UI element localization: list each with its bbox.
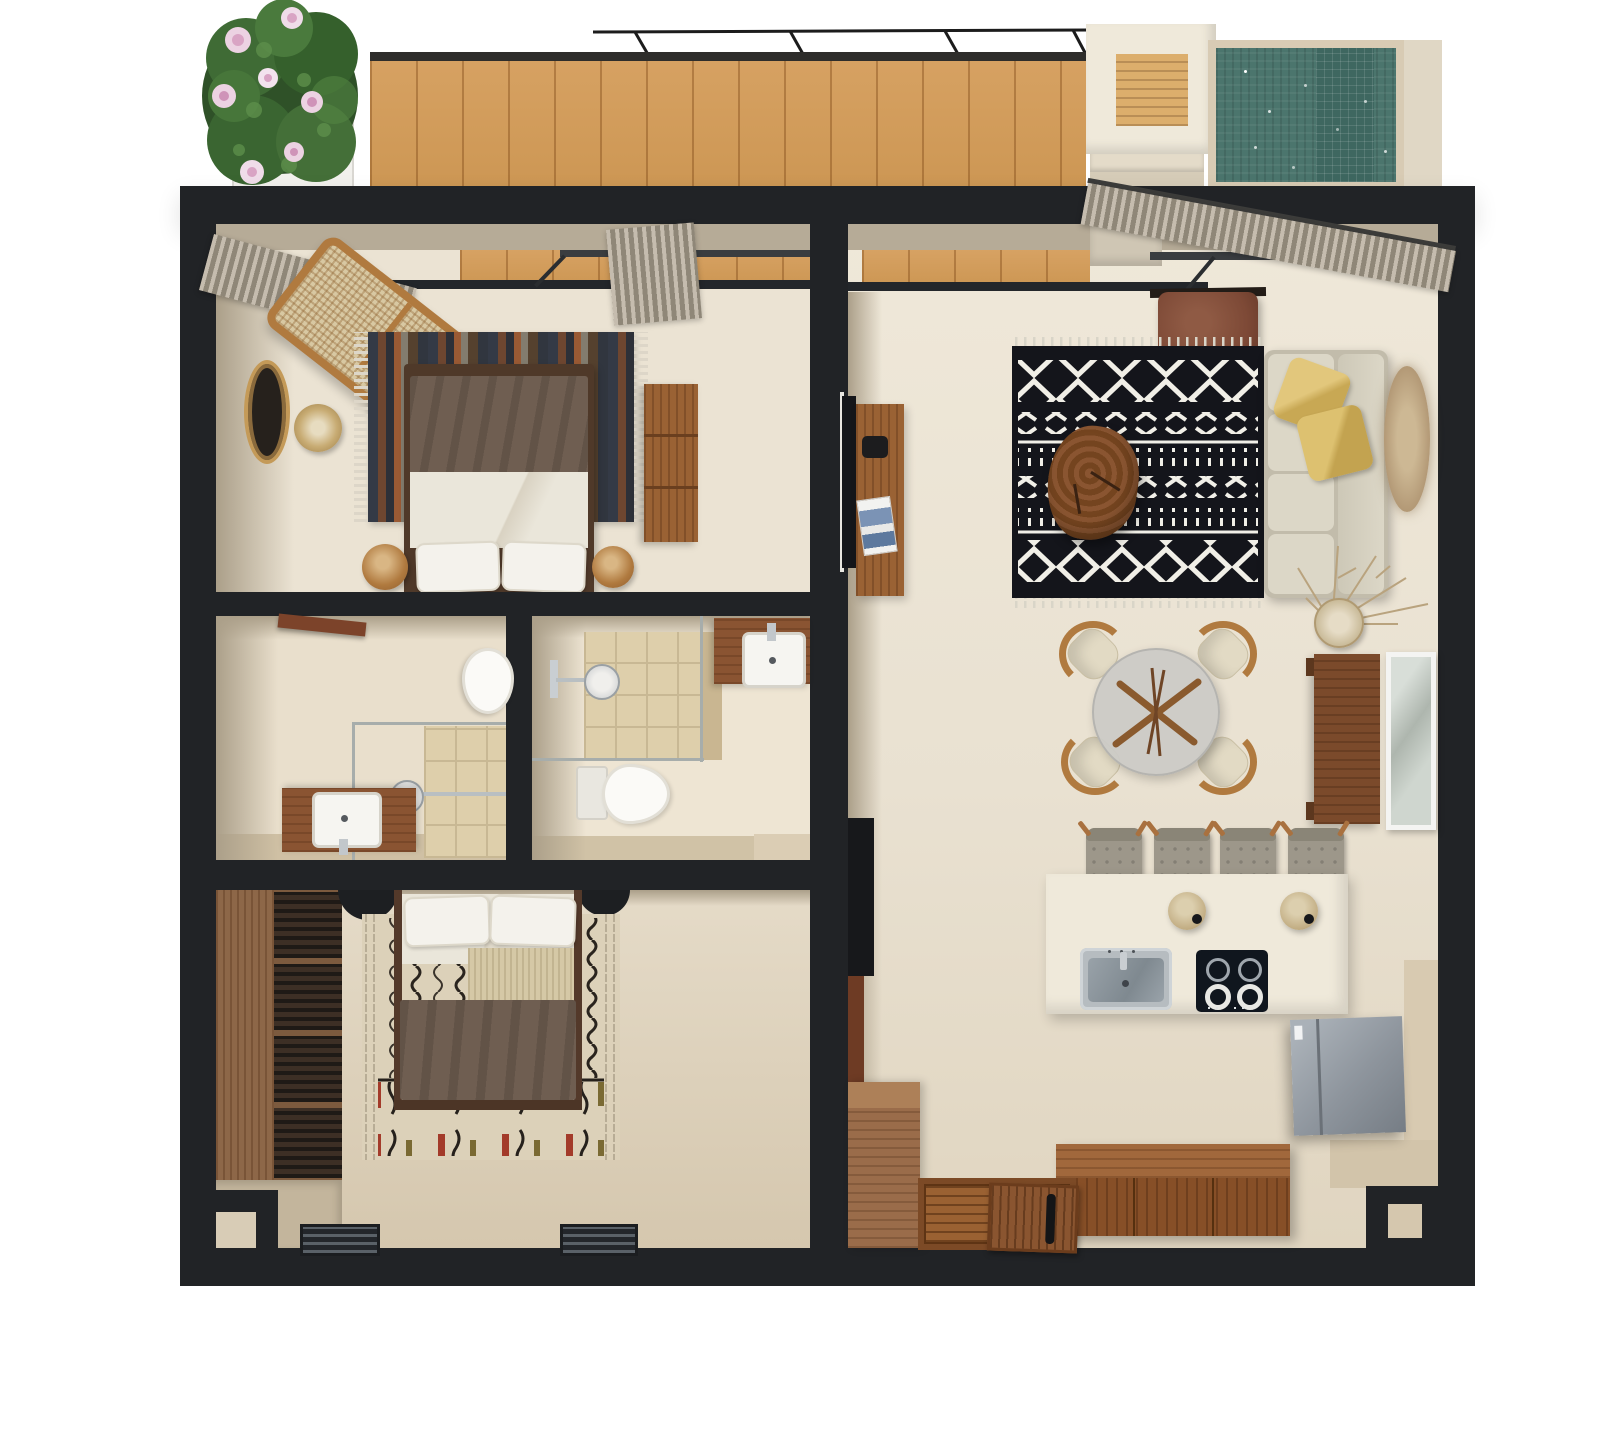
cooktop: [1196, 950, 1268, 1012]
sideboard-front: [1056, 1178, 1290, 1236]
stool-roll: [1154, 828, 1210, 841]
niche-pocket: [216, 1212, 256, 1248]
shower-glass-h: [352, 722, 506, 725]
speaker: [862, 436, 888, 458]
sink-drain: [769, 657, 776, 664]
living-deck-through-glass: [862, 250, 1090, 284]
console-leg: [1306, 658, 1314, 676]
niche-wall-top: [216, 1190, 278, 1212]
bed-2-pillow-right: [489, 895, 577, 948]
bathroom-2-shower-head: [584, 664, 620, 700]
fridge: [1290, 1016, 1406, 1136]
bed-1-pillow-right: [501, 541, 587, 594]
bathroom-2-corner-step: [754, 834, 810, 860]
pool-sparkles: [1244, 70, 1247, 73]
pendant-lamp-2: [1280, 892, 1318, 930]
table-legs-icon: [1094, 650, 1218, 774]
magazines: [856, 496, 897, 556]
bed-1-pouf-right: [592, 546, 634, 588]
sink-tap: [767, 623, 776, 641]
burner: [1237, 984, 1263, 1010]
fridge-door-seam: [1316, 1019, 1323, 1135]
corner-step-notch: [1388, 1204, 1422, 1238]
niche-wall-side: [256, 1212, 278, 1272]
island-sink: [1080, 948, 1172, 1010]
dresser-shelf-line: [644, 486, 698, 489]
bathroom-2-wall-shade-left: [532, 616, 586, 860]
plunge-pool: [1208, 40, 1404, 190]
sideboard-seam: [1133, 1178, 1135, 1236]
pool-deep-end: [1316, 48, 1374, 182]
entry-door-leaf: [987, 1182, 1079, 1253]
sideboard: [1056, 1144, 1290, 1236]
log-crack: [1090, 471, 1120, 492]
island-faucet: [1120, 952, 1127, 970]
bedroom-1-curtain-right: [606, 222, 702, 325]
jute-oval-rug: [1384, 366, 1430, 512]
fridge-handle: [1294, 1026, 1302, 1040]
floor-vent-left: [300, 1224, 380, 1256]
terrace-deck: [370, 52, 1086, 186]
sink-drain: [341, 815, 348, 822]
stool-roll: [1288, 828, 1344, 841]
sideboard-seam: [1212, 1178, 1214, 1236]
dresser-shelf-line: [644, 434, 698, 437]
wardrobe-slats: [274, 890, 342, 1180]
dining-table: [1092, 648, 1220, 776]
bed-1-pillow-left: [415, 541, 501, 594]
wall-divider-center: [810, 224, 848, 1248]
pendant-lamp-1: [1168, 892, 1206, 930]
bed-1-pouf-left: [362, 544, 408, 590]
floor-vent-right: [560, 1224, 638, 1256]
pendant-bulb: [1192, 914, 1202, 924]
planter-box: [1086, 24, 1216, 154]
planter-step-1: [1090, 154, 1204, 172]
bathroom-1-wall-shade-left: [216, 616, 278, 860]
plant-icon: [194, 0, 366, 202]
console-table: [1314, 654, 1380, 824]
entry-dresser: [848, 1082, 920, 1248]
log-crack: [1073, 484, 1081, 514]
bottom-right-ledge: [1330, 1140, 1438, 1188]
bedroom-1-dresser: [644, 384, 698, 542]
entry-door-handle: [1045, 1194, 1056, 1244]
sofa-cushion: [1268, 474, 1334, 531]
bathroom-2-glass-v: [700, 616, 703, 762]
cooktop-controls: [1208, 1007, 1210, 1009]
wall-right: [1438, 186, 1475, 1286]
leaning-mirror: [1386, 652, 1436, 830]
sink-drain: [1122, 980, 1129, 987]
entry-dresser-top: [848, 1082, 920, 1108]
sideboard-top: [1056, 1144, 1290, 1178]
wardrobe-slat-panel: [274, 964, 342, 1030]
rug-fringe-left: [354, 332, 368, 522]
bed-1-sheet: [410, 472, 588, 548]
stool-roll: [1220, 828, 1276, 841]
bed-2-pillow-left: [403, 895, 491, 948]
shower-arm: [418, 792, 506, 796]
bed-2: [394, 890, 582, 1110]
bed-2-duvet: [400, 1000, 576, 1100]
planter-wood-top: [1116, 54, 1188, 126]
burner: [1238, 958, 1262, 982]
pendant-bulb: [1304, 914, 1314, 924]
wardrobe-slat-panel: [274, 1108, 342, 1178]
stool-roll: [1086, 828, 1142, 841]
floor-plan-scene: [0, 0, 1600, 1440]
wardrobe-slat-panel: [274, 892, 342, 958]
bed-1: [404, 364, 594, 600]
burner: [1206, 958, 1230, 982]
tv-console: [856, 404, 904, 596]
wall-bathrooms-bedroom2: [216, 860, 810, 890]
divider-wood-strip: [848, 976, 864, 1082]
wardrobe-slat-panel: [274, 1036, 342, 1102]
bathroom-2-glass-h: [532, 758, 704, 761]
sink-tap: [339, 839, 348, 855]
tv-screen: [842, 396, 856, 568]
wall-mirror: [244, 360, 290, 464]
basket: [294, 404, 342, 452]
wall-between-bathrooms: [506, 616, 532, 860]
wall-bedroom1-bathrooms: [216, 592, 810, 616]
bathroom-2-sink: [742, 632, 806, 688]
wall-left: [180, 186, 216, 1286]
bed-2-linen-band: [468, 948, 574, 1002]
pool-side-wall: [1398, 40, 1442, 188]
divider-media-panel: [848, 818, 874, 976]
deck-edge-beam: [370, 52, 1086, 61]
vase: [1314, 598, 1364, 648]
bed-1-duvet: [410, 376, 588, 476]
wardrobe-frame: [216, 890, 274, 1180]
faucet-dots: [1108, 950, 1111, 953]
console-leg: [1306, 802, 1314, 820]
pool-water: [1216, 48, 1396, 182]
bathroom-1-sink: [312, 792, 382, 848]
bedroom-1-sill: [216, 224, 810, 250]
bed-2-footboard: [394, 1100, 582, 1110]
